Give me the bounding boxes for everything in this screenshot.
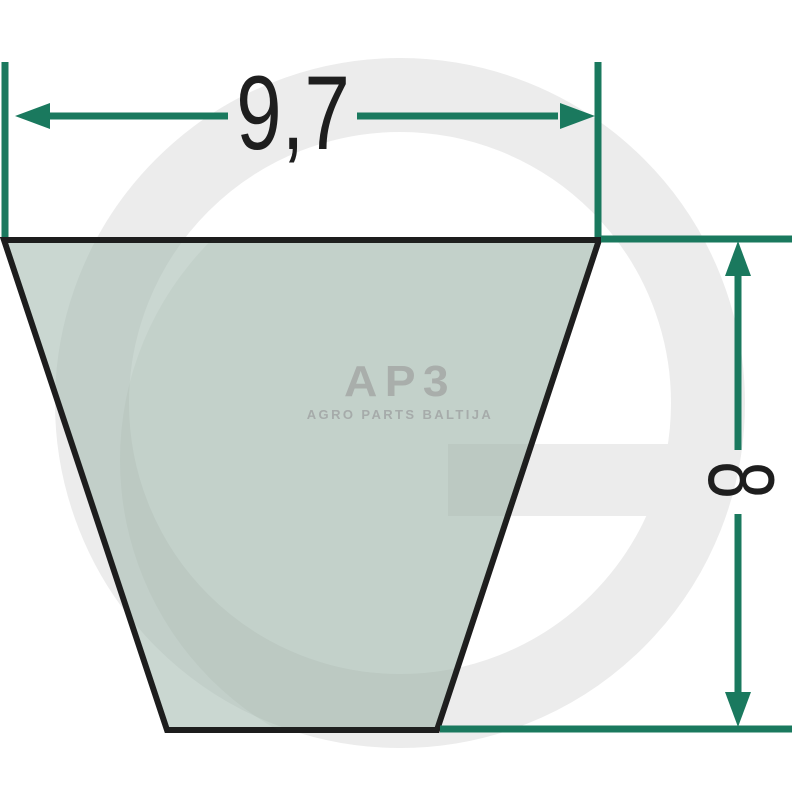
apb-logo-text: AP3 (243, 360, 558, 404)
apb-logo: AP3 AGRO PARTS BALTIJA (250, 360, 550, 422)
height-arrowhead-top (725, 241, 751, 276)
height-dimension-label: 8 (691, 444, 791, 516)
width-dimension-label: 9,7 (199, 52, 386, 176)
diagram-canvas: 9,7 8 AP3 AGRO PARTS BALTIJA (0, 0, 800, 800)
width-arrowhead-left (15, 103, 50, 129)
height-arrowhead-bottom (725, 692, 751, 727)
apb-logo-subtitle: AGRO PARTS BALTIJA (250, 407, 550, 422)
